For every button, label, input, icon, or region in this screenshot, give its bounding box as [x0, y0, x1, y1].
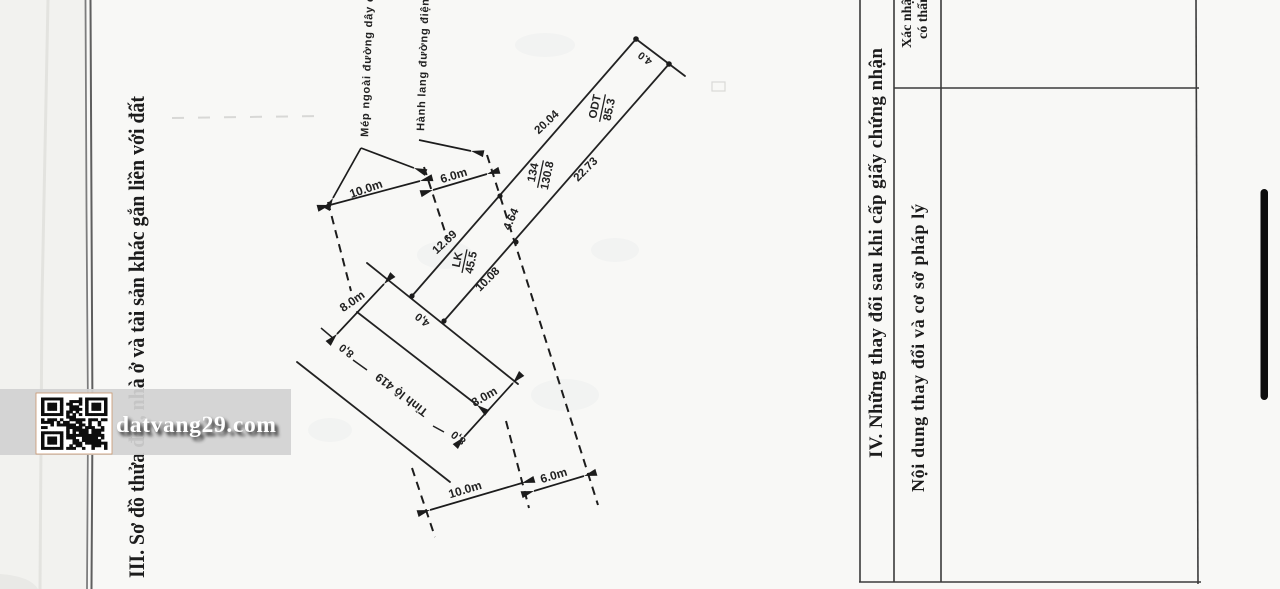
- svg-text:Xác nhận của cơ quan: Xác nhận của cơ quan: [900, 0, 915, 48]
- svg-text:datvang29.com: datvang29.com: [116, 412, 276, 438]
- svg-text:IV. Những thay đổi sau khi cấp: IV. Những thay đổi sau khi cấp giấy chứn…: [866, 48, 887, 458]
- svg-text:Nội dung thay đổi và cơ sở phá: Nội dung thay đổi và cơ sở pháp lý: [908, 204, 928, 492]
- svg-text:có thẩm quyền: có thẩm quyền: [916, 0, 931, 39]
- svg-text:III. Sơ đồ thửa đất, nhà ở và: III. Sơ đồ thửa đất, nhà ở và tài sản kh…: [124, 95, 149, 578]
